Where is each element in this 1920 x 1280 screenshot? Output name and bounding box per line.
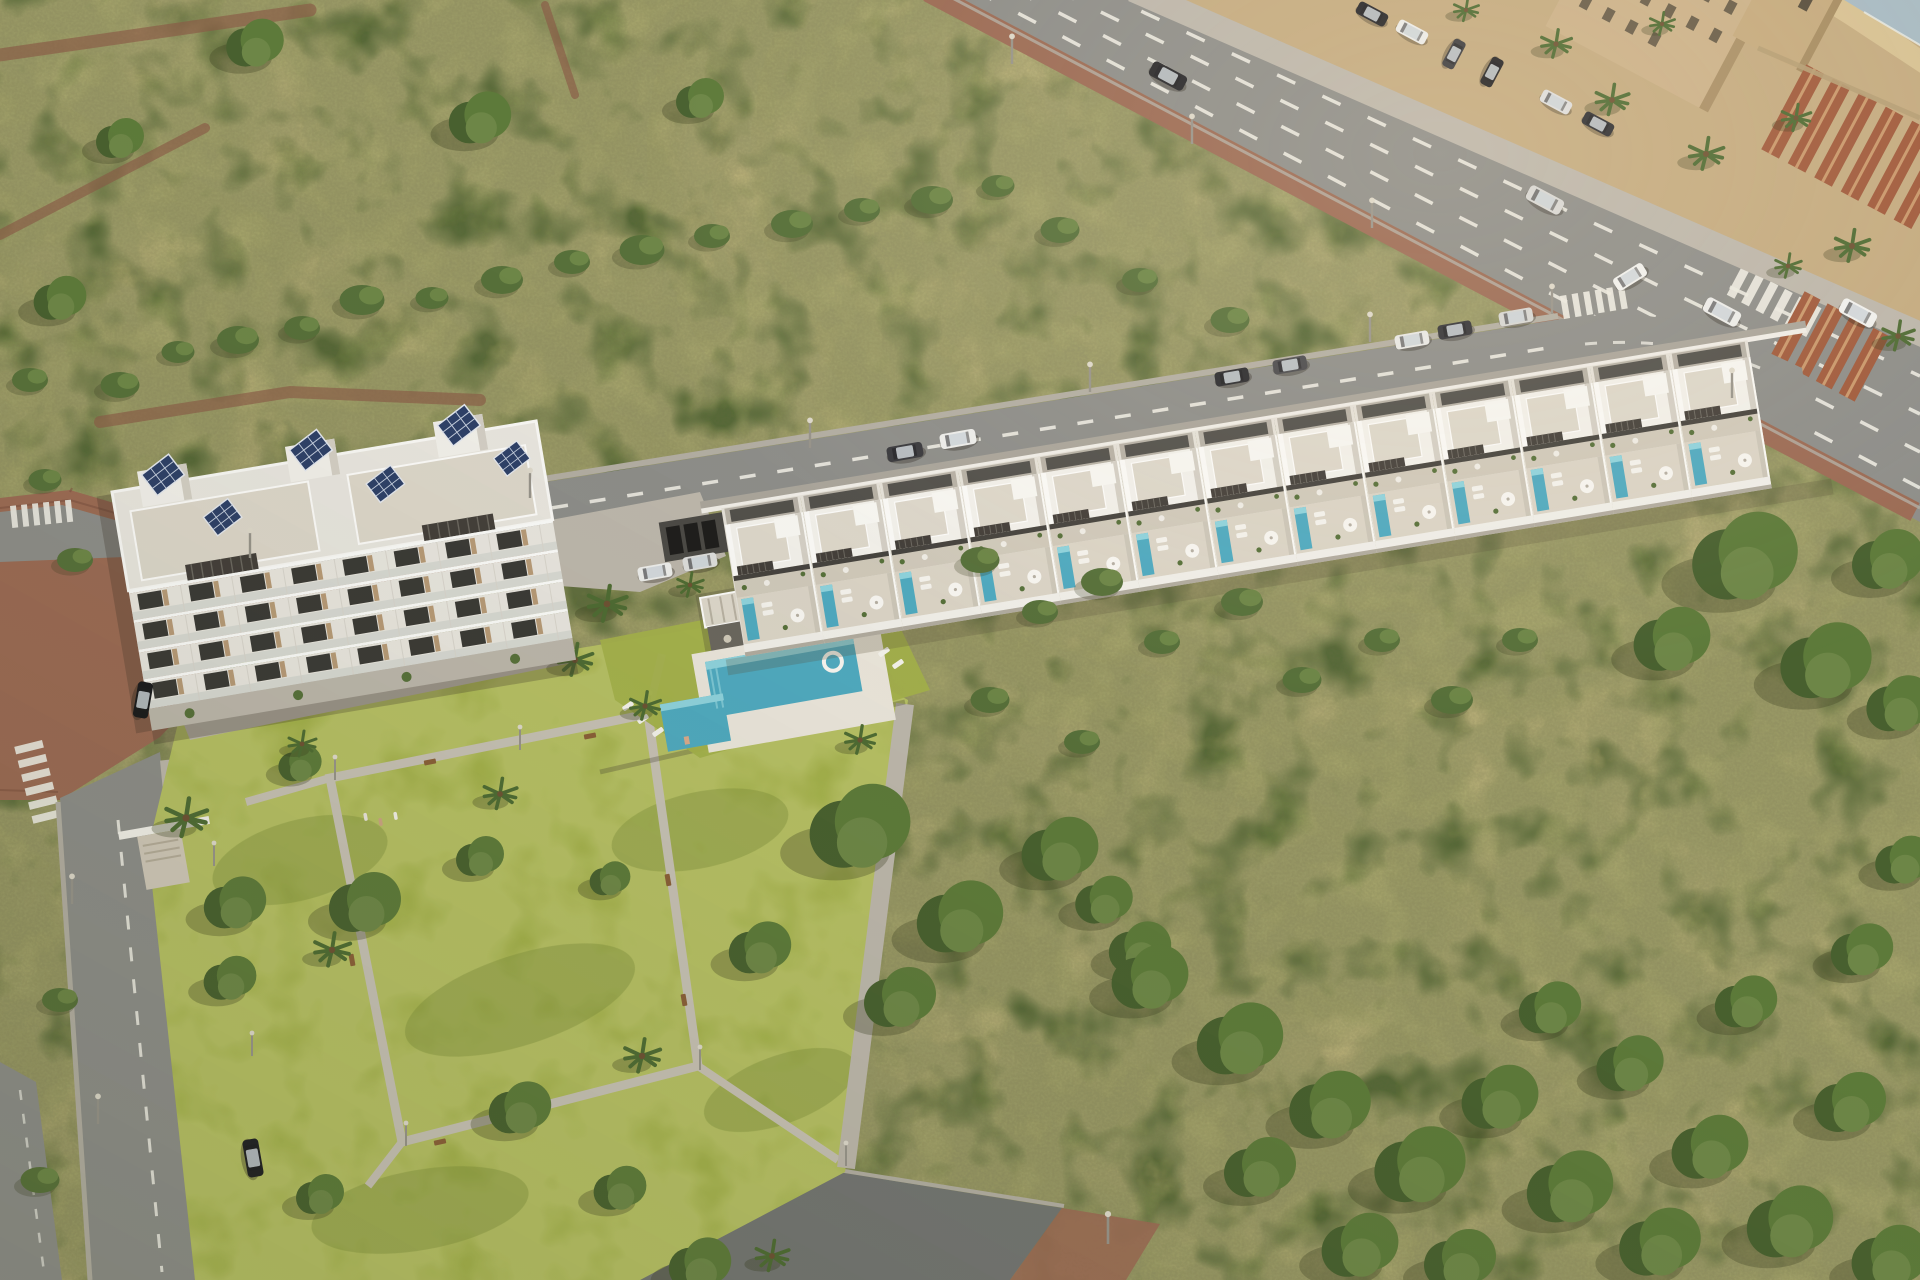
aerial-render: [0, 0, 1920, 1280]
shade-overlay: [0, 0, 1920, 1280]
